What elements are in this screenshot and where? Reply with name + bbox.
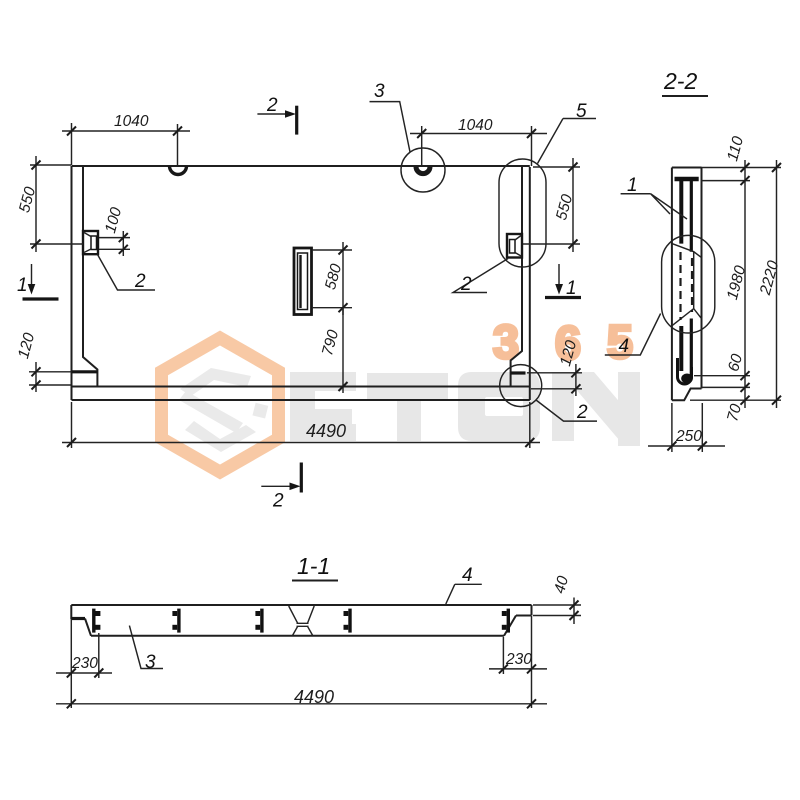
svg-text:1: 1 bbox=[627, 175, 638, 196]
svg-text:2: 2 bbox=[266, 95, 278, 116]
svg-text:2: 2 bbox=[460, 274, 472, 295]
svg-text:1: 1 bbox=[566, 278, 577, 299]
svg-text:4: 4 bbox=[619, 336, 630, 357]
svg-text:3: 3 bbox=[374, 81, 385, 102]
svg-text:2: 2 bbox=[576, 402, 588, 423]
svg-text:2: 2 bbox=[272, 491, 284, 512]
svg-text:1: 1 bbox=[17, 275, 28, 296]
svg-text:1040: 1040 bbox=[114, 113, 149, 130]
svg-text:4490: 4490 bbox=[306, 421, 346, 441]
svg-text:1040: 1040 bbox=[458, 117, 493, 134]
svg-text:4: 4 bbox=[462, 565, 473, 586]
svg-text:250: 250 bbox=[675, 428, 702, 445]
svg-text:3: 3 bbox=[145, 652, 156, 673]
svg-text:5: 5 bbox=[576, 101, 587, 122]
svg-text:2-2: 2-2 bbox=[663, 68, 697, 94]
svg-text:230: 230 bbox=[71, 655, 98, 672]
svg-text:1-1: 1-1 bbox=[297, 553, 330, 579]
svg-text:4490: 4490 bbox=[294, 687, 334, 707]
svg-text:2: 2 bbox=[134, 271, 146, 292]
svg-text:230: 230 bbox=[505, 651, 532, 668]
svg-text:3: 3 bbox=[493, 315, 519, 368]
